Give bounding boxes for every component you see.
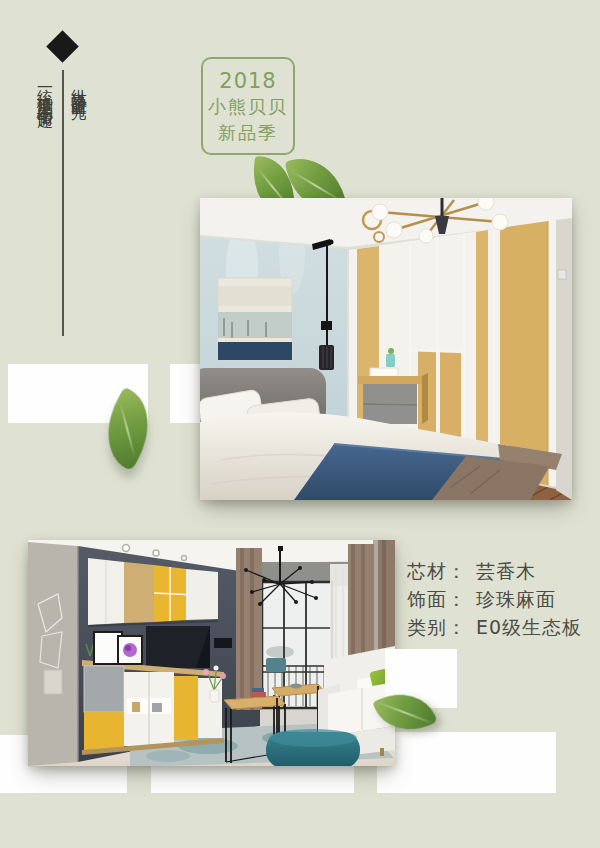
spec-colon: ： [447,557,467,585]
spec-row-category: 类别：E0级生态板 [407,613,582,641]
white-tile [377,732,556,793]
badge-brand: 小熊贝贝 [203,94,293,120]
spec-label: 类别 [407,613,447,641]
badge-year: 2018 [203,68,293,94]
product-specs: 芯材：芸香木 饰面：珍珠麻面 类别：E0级生态板 [407,557,582,641]
spec-row-core-material: 芯材：芸香木 [407,557,582,585]
spec-value: 珍珠麻面 [476,585,556,613]
spec-colon: ： [447,585,467,613]
spec-colon: ： [447,613,467,641]
living-room-photo [28,540,395,766]
bedroom-photo [200,198,572,500]
slogan-sub: 统一格调里的小情趣 [34,76,55,103]
spec-value: E0级生态板 [476,613,582,641]
spec-value: 芸香木 [476,557,536,585]
spec-row-finish: 饰面：珍珠麻面 [407,585,582,613]
slogan-main: 纵享静谧时光 [68,76,89,94]
vertical-divider-line [62,70,64,336]
new-season-badge: 2018 小熊贝贝 新品季 [201,57,295,155]
diamond-ornament [46,30,79,63]
badge-season: 新品季 [203,120,293,146]
spec-label: 芯材 [407,557,447,585]
spec-label: 饰面 [407,585,447,613]
poster: 纵享静谧时光 统一格调里的小情趣 2018 小熊贝贝 新品季 [0,0,600,848]
